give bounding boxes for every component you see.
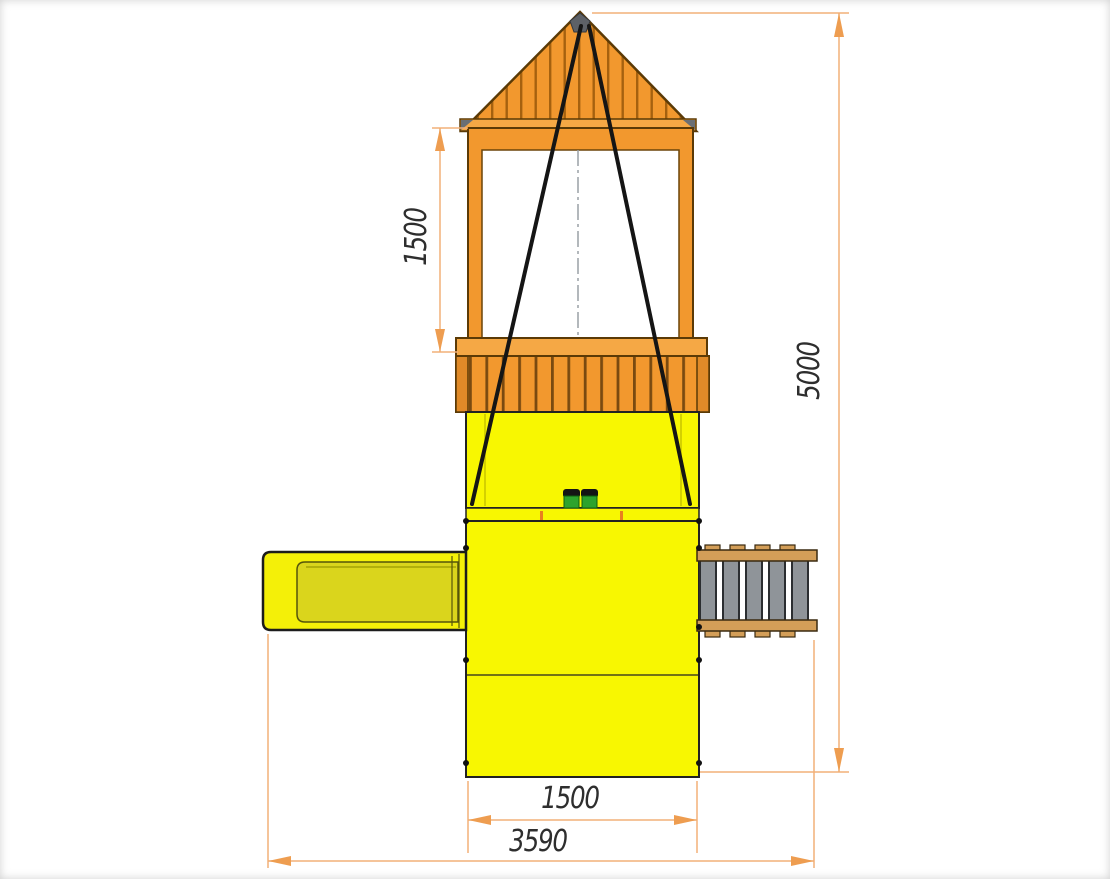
dimension-window-height [432,128,468,352]
arrowhead-right [791,856,814,866]
floor-peg-right [620,511,623,520]
window-frame [468,128,693,356]
dimension-text-window-height: 1500 [402,208,432,266]
ladder-step [792,557,808,625]
ladder-step [723,557,739,625]
slide [263,552,466,630]
arrowhead-right [674,815,697,825]
bolt [696,624,702,630]
bolt [696,657,702,663]
floor-band [466,508,699,521]
roof [460,12,696,131]
window-sill [456,338,707,356]
bolt [696,518,702,524]
dimension-text-platform-width: 1500 [541,784,599,814]
arrowhead-left [268,856,291,866]
bolt [696,760,702,766]
ladder-step [746,557,762,625]
tower-base [466,521,699,777]
arrowhead-up [435,128,445,151]
seat-body-left [564,496,579,508]
ladder [697,545,817,637]
arrowhead-left [468,815,491,825]
ladder-rail-top [697,550,817,561]
elevation-drawing-svg [0,0,1110,879]
bolt [463,657,469,663]
slide-trough [297,562,458,622]
ladder-rail-bottom [697,620,817,631]
bolt [696,545,702,551]
arrowhead-down [435,329,445,352]
balustrade-post-left [456,356,468,412]
arrowhead-up [834,13,844,37]
dimension-text-total-width: 3590 [509,827,567,857]
balustrade-post-right [697,356,709,412]
seat-body-right [582,496,597,508]
ladder-step [700,557,716,625]
playground-elevation-drawing: 1500 5000 1500 3590 [0,0,1110,879]
bolt [463,545,469,551]
bolt [463,518,469,524]
arrowhead-down [834,748,844,772]
floor-peg-left [540,511,543,520]
ladder-step [769,557,785,625]
dimension-text-total-height: 5000 [795,342,825,400]
bolt [463,760,469,766]
tower-walls [466,412,699,777]
